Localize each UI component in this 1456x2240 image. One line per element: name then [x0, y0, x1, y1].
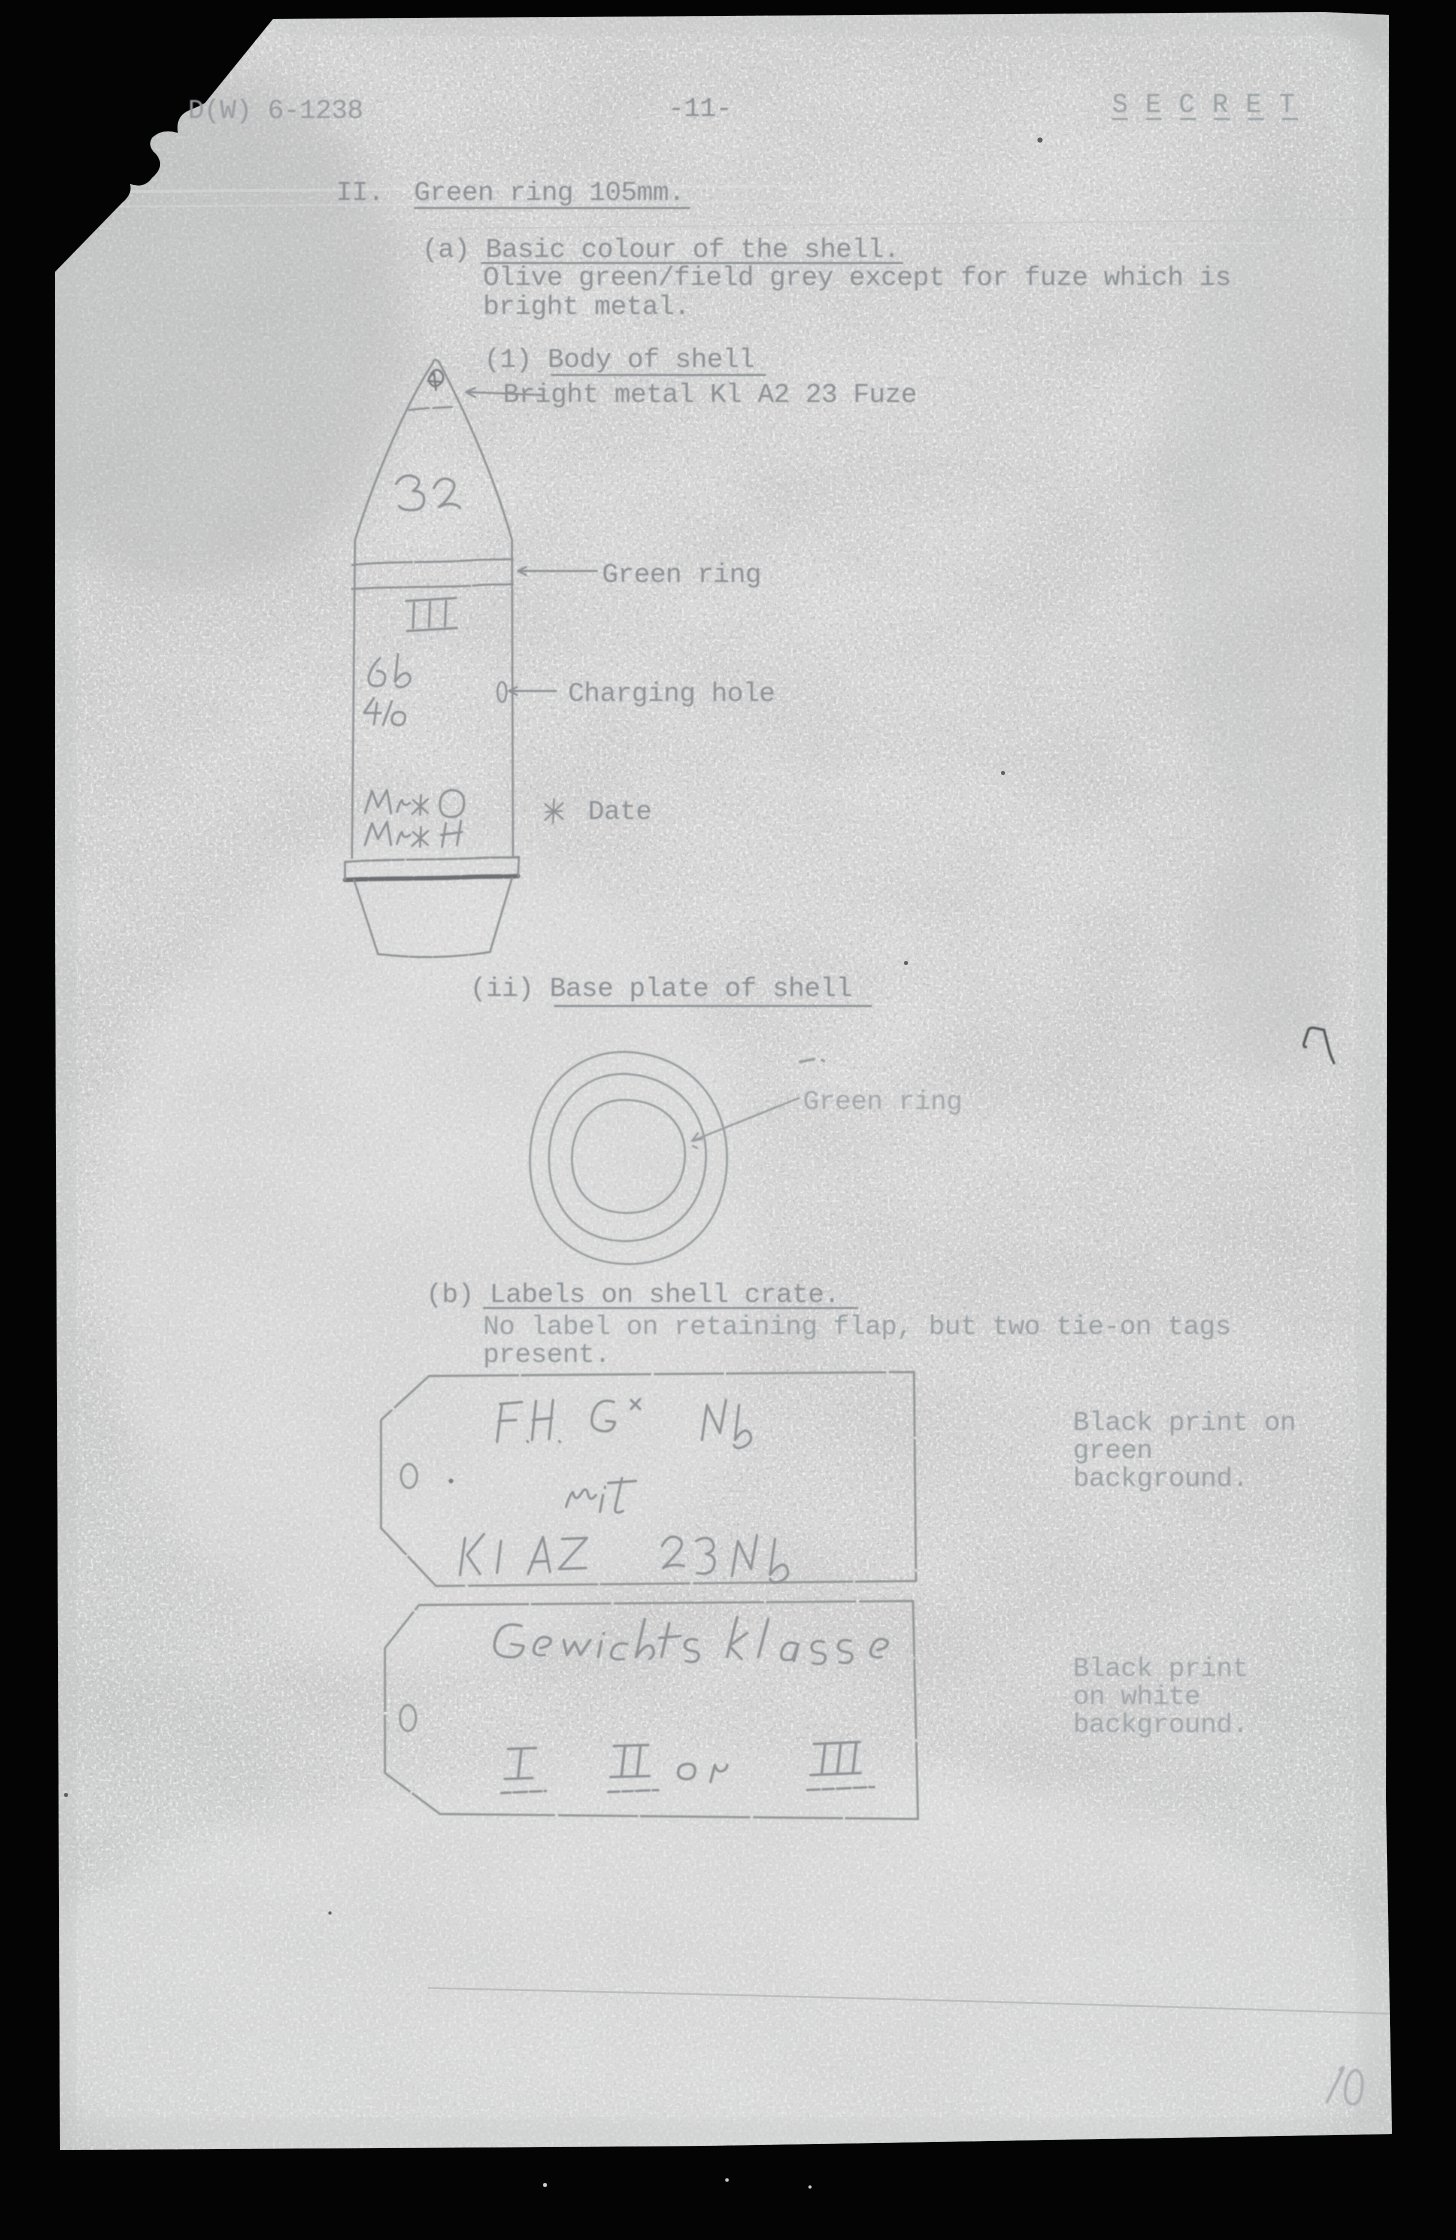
svg-text:D(W) 6-1238: D(W) 6-1238	[188, 96, 363, 127]
svg-text:S E C R E T: S E C R E T	[1112, 90, 1296, 120]
svg-text:Charging hole: Charging hole	[568, 679, 775, 710]
svg-text:Date: Date	[588, 797, 652, 828]
svg-text:No label on retaining flap, bu: No label on retaining flap, but two tie-…	[483, 1312, 1231, 1343]
svg-text:-11-: -11-	[668, 94, 732, 125]
svg-text:bright metal.: bright metal.	[483, 292, 690, 323]
svg-text:Olive green/field grey except: Olive green/field grey except for fuze w…	[483, 263, 1231, 294]
svg-text:(1) Body of shell: (1) Body of shell	[484, 345, 755, 376]
svg-text:(a) Basic colour of the shell.: (a) Basic colour of the shell.	[422, 235, 899, 266]
svg-text:Green ring: Green ring	[803, 1087, 962, 1118]
svg-text:background.: background.	[1073, 1464, 1248, 1495]
svg-text:on white: on white	[1073, 1682, 1200, 1713]
svg-text:(ii) Base plate of shell: (ii) Base plate of shell	[470, 974, 852, 1005]
svg-text:Green ring: Green ring	[602, 560, 761, 591]
svg-text:background.: background.	[1073, 1710, 1248, 1741]
svg-text:Bright metal Kl A2 23 Fuze: Bright metal Kl A2 23 Fuze	[503, 380, 917, 411]
svg-text:present.: present.	[483, 1340, 610, 1371]
svg-text:Black print: Black print	[1073, 1654, 1248, 1685]
svg-text:(b) Labels on shell crate.: (b) Labels on shell crate.	[426, 1280, 840, 1311]
svg-text:Green ring 105mm.: Green ring 105mm.	[414, 178, 685, 209]
svg-text:green: green	[1073, 1436, 1153, 1467]
svg-text:II.: II.	[336, 178, 384, 209]
svg-text:Black print on: Black print on	[1073, 1408, 1296, 1439]
